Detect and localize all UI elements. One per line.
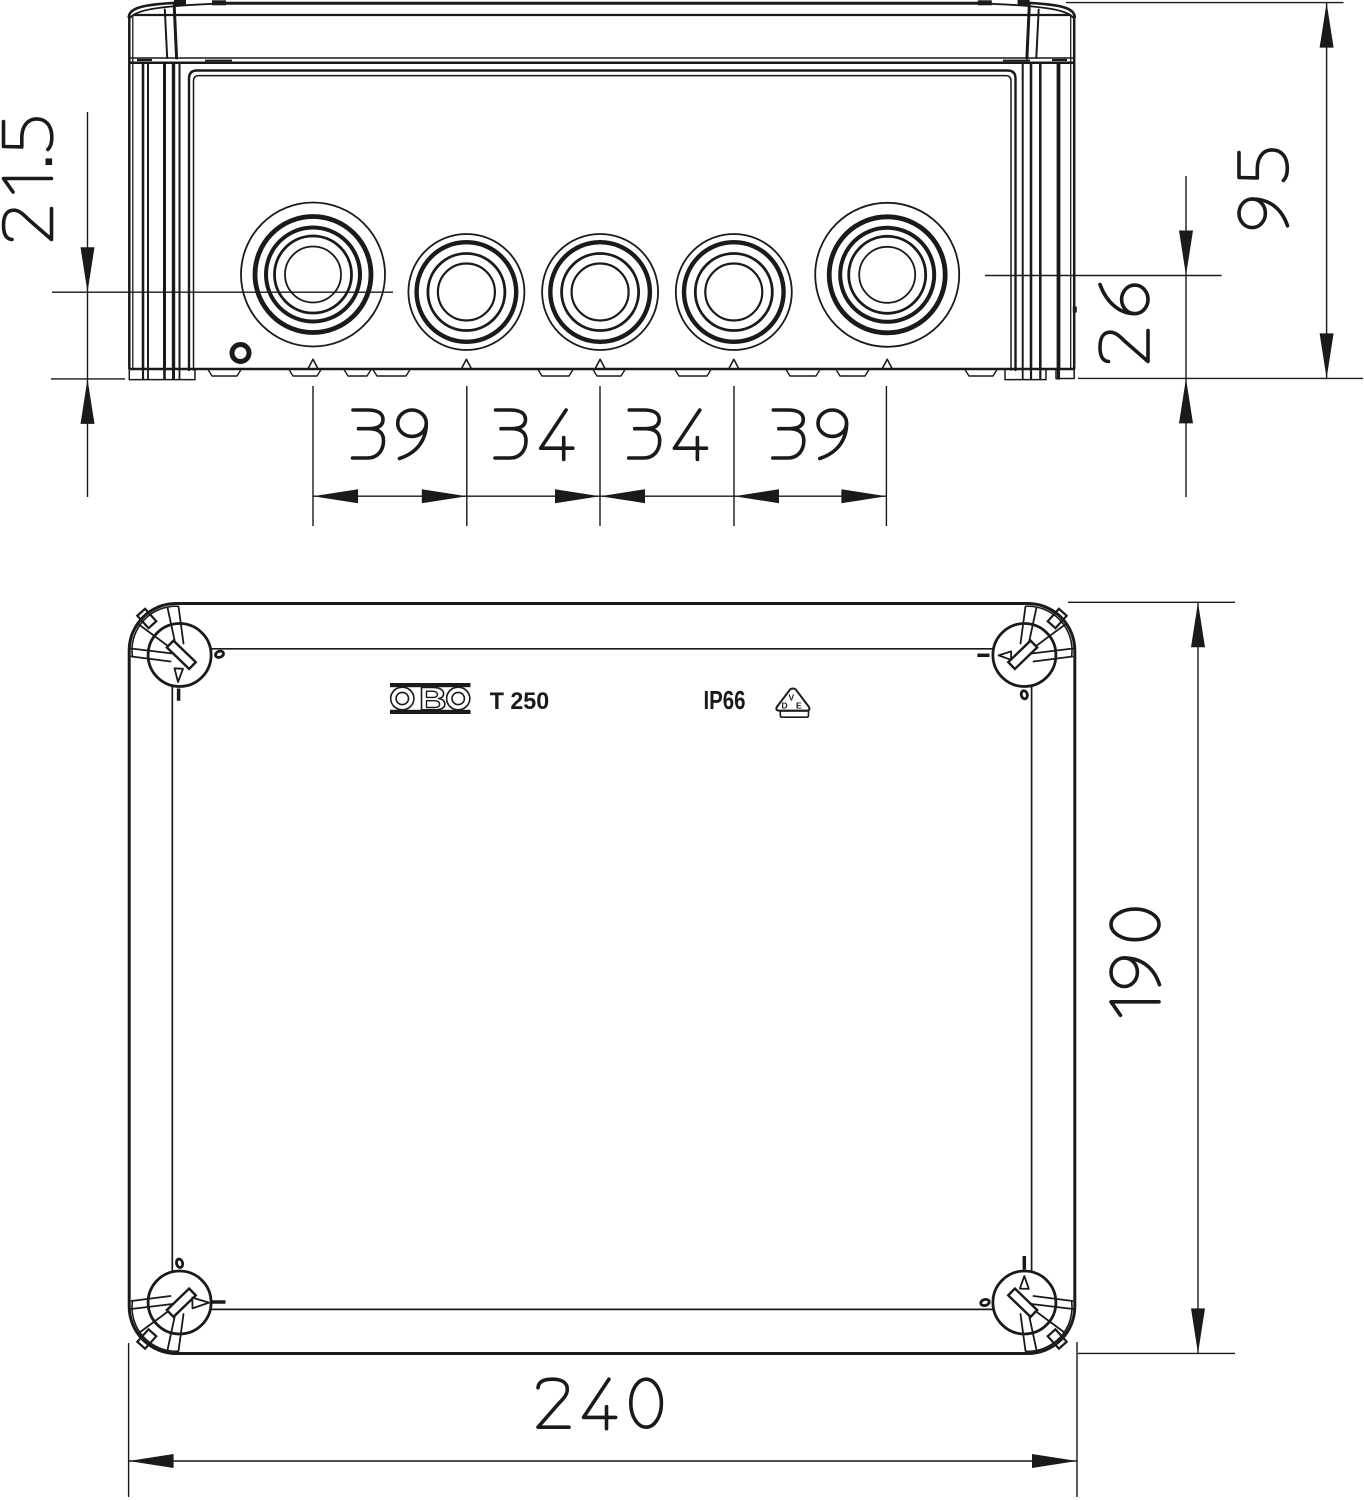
svg-text:D: D xyxy=(782,701,788,711)
svg-text:E: E xyxy=(796,701,802,711)
svg-text:V: V xyxy=(789,693,795,703)
svg-text:T 250: T 250 xyxy=(490,688,550,715)
svg-text:IP66: IP66 xyxy=(704,685,746,715)
